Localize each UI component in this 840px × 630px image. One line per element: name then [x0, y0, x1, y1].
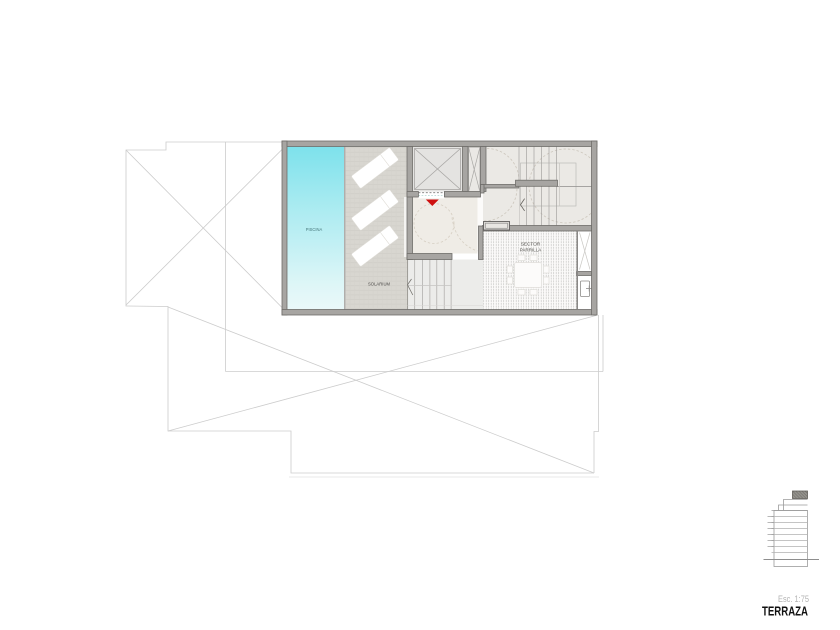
- svg-text:SOLARIUM: SOLARIUM: [368, 282, 390, 288]
- svg-text:SECTOR: SECTOR: [521, 242, 541, 248]
- svg-text:TERRAZA: TERRAZA: [762, 604, 808, 619]
- svg-text:PISCINA: PISCINA: [306, 227, 323, 233]
- svg-text:PARRILLA: PARRILLA: [520, 247, 542, 253]
